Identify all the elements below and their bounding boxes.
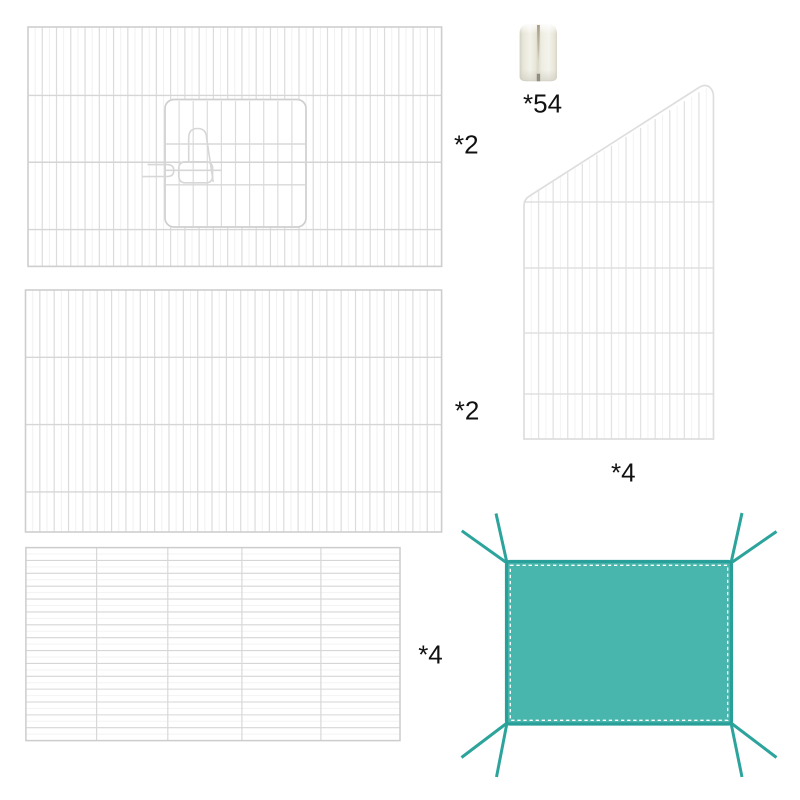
svg-text:*54: *54 (523, 89, 562, 119)
svg-text:*4: *4 (611, 457, 636, 487)
svg-text:*2: *2 (455, 395, 480, 425)
svg-text:*4: *4 (418, 639, 443, 669)
svg-text:*2: *2 (454, 129, 479, 159)
